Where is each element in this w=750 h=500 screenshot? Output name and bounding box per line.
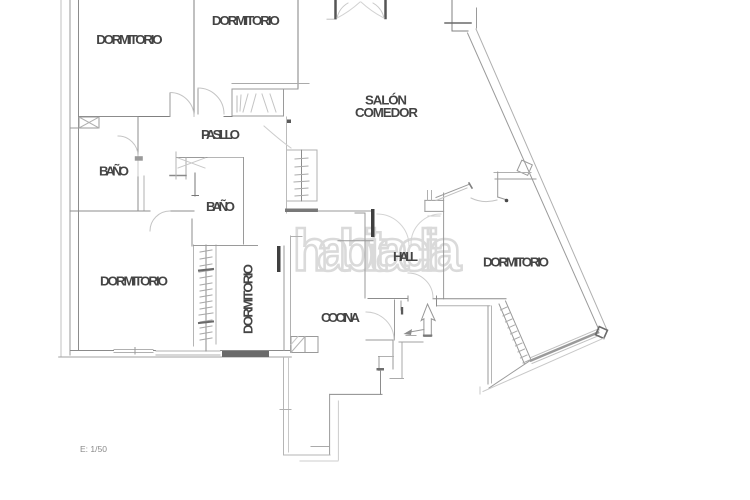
svg-text:DORMITORIO: DORMITORIO [96,32,162,47]
svg-text:COCINA: COCINA [321,310,360,325]
svg-text:BAÑO: BAÑO [206,199,235,214]
svg-text:BAÑO: BAÑO [99,164,129,179]
svg-text:E: 1/50: E: 1/50 [80,444,107,454]
svg-text:habitaclia: habitaclia [293,219,462,284]
svg-text:DORMITORIO: DORMITORIO [241,264,256,334]
svg-text:DORMITORIO: DORMITORIO [100,274,168,289]
svg-text:PASILLO: PASILLO [201,127,240,142]
svg-text:DORMITORIO: DORMITORIO [212,13,280,28]
svg-text:DORMITORIO: DORMITORIO [483,255,549,270]
svg-text:HALL: HALL [393,249,418,264]
svg-text:COMEDOR: COMEDOR [355,105,418,120]
